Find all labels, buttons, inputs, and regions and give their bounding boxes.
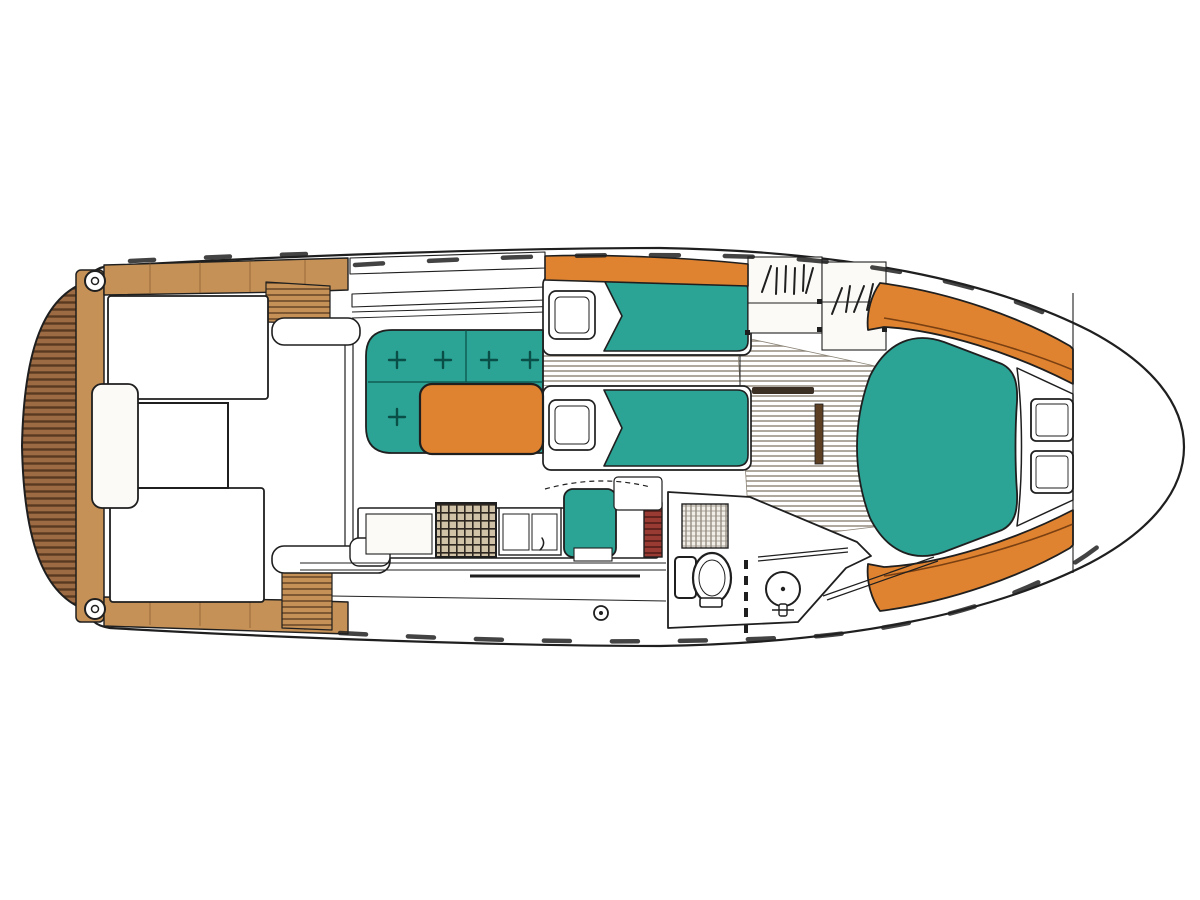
shower-grate xyxy=(682,504,728,548)
galley-seat-step xyxy=(574,548,612,561)
floor-plan-svg xyxy=(0,0,1200,900)
v-berth-pillow-port xyxy=(1031,399,1073,441)
berth-starboard-mattress xyxy=(604,390,748,466)
sole-threshold xyxy=(752,387,814,394)
stern-cleat-port xyxy=(85,271,105,291)
companionway-steps xyxy=(644,503,662,557)
salon-table xyxy=(420,384,543,454)
cockpit-table xyxy=(137,403,228,488)
sole-step-edge xyxy=(815,404,823,464)
side-deck-steps-starboard xyxy=(282,566,332,630)
yacht-floor-plan xyxy=(0,0,1200,900)
grab-rail-port xyxy=(272,318,360,345)
stern-cleat-starboard xyxy=(85,599,105,619)
galley-seat xyxy=(564,489,616,557)
cockpit-bench-port xyxy=(108,296,268,399)
v-berth-mattress xyxy=(857,338,1017,556)
berth-port-pillow xyxy=(549,291,595,339)
galley-locker xyxy=(366,514,432,554)
v-berth-headboard xyxy=(1017,368,1073,526)
toilet xyxy=(675,553,731,607)
v-berth-pillow-starboard xyxy=(1031,451,1073,493)
salon xyxy=(366,330,543,454)
galley-stove xyxy=(436,503,496,557)
berth-port-mattress xyxy=(604,280,748,351)
transom-module xyxy=(92,384,138,508)
deck-cleat-starboard xyxy=(594,606,608,620)
